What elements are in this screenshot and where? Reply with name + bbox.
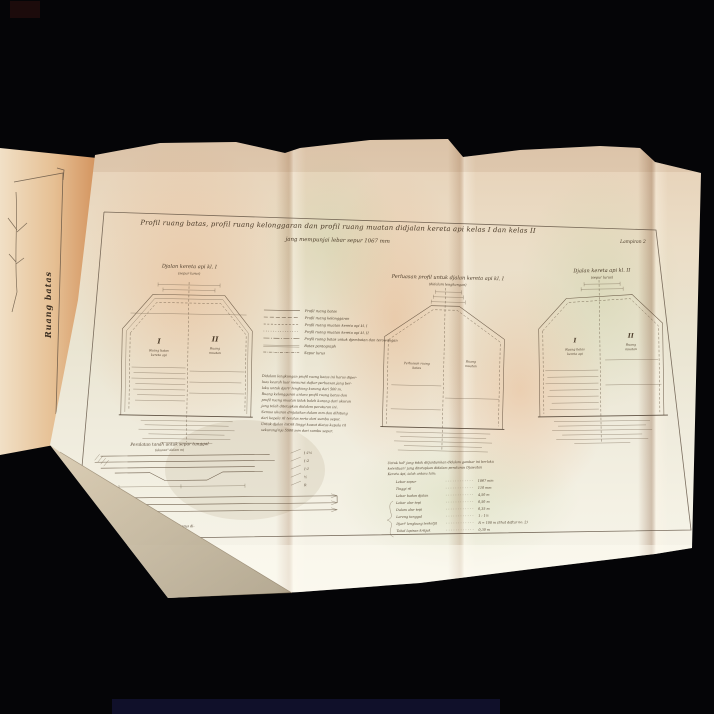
photo-artifact-bottom-bar	[112, 699, 500, 714]
diagram-class2-title: Djalan kereta api kl. II	[572, 268, 631, 275]
widening-caption-left: batas	[412, 366, 421, 370]
zone1-caption: kereta api	[151, 353, 167, 357]
slope-item: 1:2	[304, 459, 309, 463]
legend-item: Sepur lurus	[304, 351, 325, 355]
key-row-label: Tebal lapisan kritjak	[396, 529, 430, 533]
slope-item: 1:1½	[304, 450, 313, 455]
legend-item: Profil ruang kelonggaran	[304, 316, 350, 321]
slope-item: ½	[304, 474, 307, 479]
zone2-caption: muatan	[209, 351, 221, 355]
slope-item: 1:1	[304, 467, 309, 471]
earthworks-title: Peralatan tanah untuk sepur tunggal	[129, 441, 209, 447]
diagram-class2-subtitle: (sepur lurus)	[591, 275, 614, 279]
key-row-label: Lereng tanggul	[395, 515, 422, 519]
key-row-label: Dalam alur tepi	[395, 508, 422, 512]
legend-item: Profil ruang batas	[304, 309, 337, 314]
photo-scene: Ruang batas Profil ruang batas, profi	[0, 0, 714, 714]
corner-label: Lampiran 2	[619, 240, 646, 245]
key-intro: Kereta Api, ialah antara lain:	[387, 471, 436, 476]
key-row-label: Djari² lengkung terketjil	[395, 521, 437, 526]
slope-item: R	[303, 483, 307, 487]
key-row-value: 4,50 m	[477, 493, 490, 497]
left-page-vertical-label: Ruang batas	[43, 271, 53, 339]
zone2-label: II	[627, 333, 635, 340]
key-row-label: Lebar sepur	[395, 480, 417, 484]
diagram-class1-title: Djalan kereta api kl. I	[161, 264, 218, 271]
key-row-value: 110 mm	[478, 486, 492, 490]
key-row-label: Lebar alur tepi	[395, 501, 421, 505]
photo-stage: Ruang batas Profil ruang batas, profi	[0, 0, 714, 714]
key-row-value: 0,30 m	[478, 528, 490, 532]
key-row-label: Lebar badan djalan	[395, 494, 428, 498]
key-row-value: 0,50 m	[478, 500, 490, 504]
widening-caption-right: muatan	[465, 364, 477, 368]
key-row-value: 0,35 m	[478, 507, 490, 511]
key-row-value: 1 : 1½	[478, 513, 489, 518]
key-row-value: 1067 mm	[478, 479, 494, 483]
photo-artifact-top-left	[10, 1, 40, 18]
zone2-label: II	[211, 334, 219, 343]
zone1-caption: kereta api	[567, 352, 583, 356]
diagram-class1-subtitle: (sepur lurus)	[178, 271, 201, 275]
zone2-caption: Ruang	[625, 343, 636, 347]
earthworks-subtitle: (ukuran² dalam m)	[155, 448, 185, 452]
legend-item: Batas pantograph	[303, 344, 336, 349]
key-row-value: R = 100 m (lihat daftar no. 2)	[477, 520, 528, 525]
key-row-label: Tinggi ril	[396, 487, 411, 491]
zone2-caption: muatan	[625, 347, 637, 351]
